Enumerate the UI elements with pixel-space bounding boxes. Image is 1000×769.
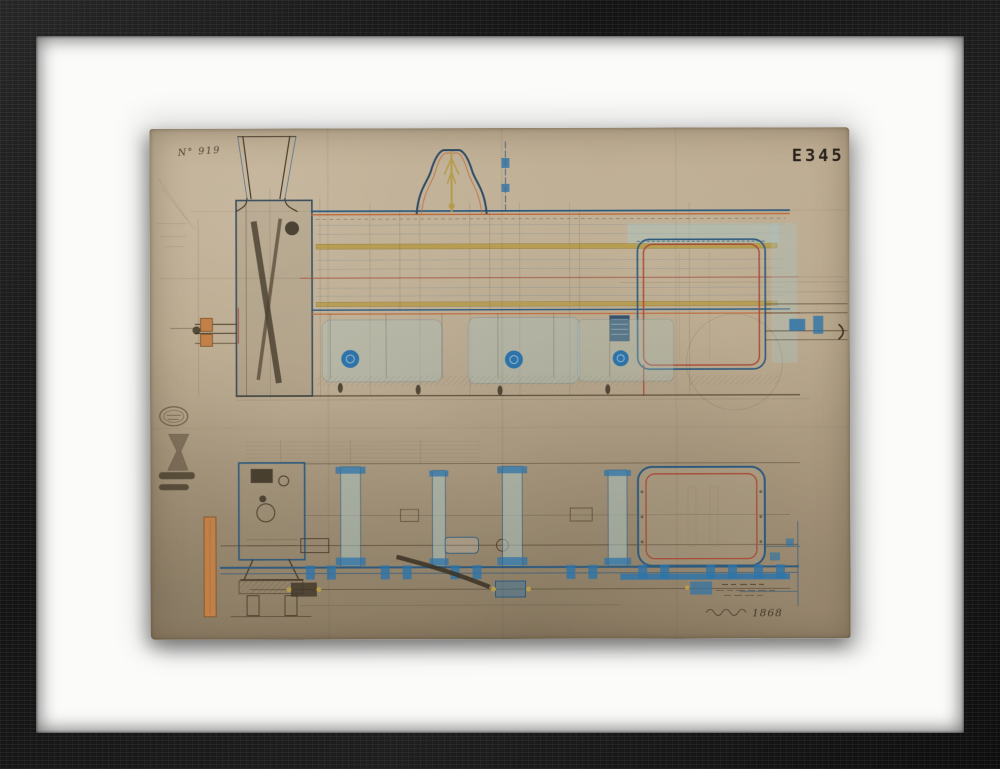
boiler-tube-band-lower	[316, 301, 777, 307]
oval-stamp	[160, 407, 188, 426]
archive-number-label: N° 919	[176, 145, 221, 159]
boiler-centerline	[300, 277, 797, 278]
framed-engineering-drawing-photo: N° 919 E345 1868	[0, 0, 1000, 769]
locomotive-drawing: N° 919 E345 1868	[149, 127, 850, 640]
inscription-year: 1868	[752, 607, 783, 619]
left-buffers	[159, 472, 195, 490]
smokebox	[236, 200, 312, 396]
axle-columns	[336, 466, 632, 567]
rear-rail-bar	[620, 573, 790, 579]
front-buffer	[170, 318, 236, 346]
upper-elevation-view	[170, 135, 847, 411]
catalogue-stamp: E345	[792, 145, 845, 165]
pedestal-sketch	[168, 434, 189, 470]
steam-dome	[417, 150, 487, 213]
boiler-stay	[501, 142, 509, 211]
drawing-paper: N° 919 E345 1868	[149, 127, 850, 640]
underframe-motion	[236, 313, 799, 396]
lower-plan-view	[159, 462, 800, 617]
smokebox-front	[239, 463, 305, 560]
firebox-plan	[638, 467, 765, 566]
title-inscription: 1868	[706, 584, 783, 619]
date-word-squiggle	[706, 609, 746, 615]
